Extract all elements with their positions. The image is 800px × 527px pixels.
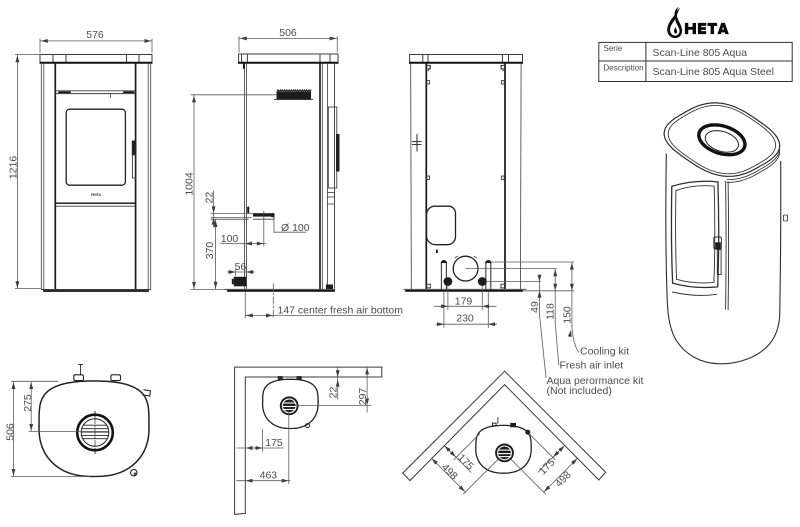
svg-text:175: 175	[265, 437, 283, 449]
svg-text:118: 118	[545, 303, 557, 320]
svg-text:Scan-Line 805 Aqua: Scan-Line 805 Aqua	[653, 47, 748, 59]
svg-text:147 center fresh air bottom: 147 center fresh air bottom	[278, 304, 404, 316]
svg-text:Scan-Line 805 Aqua Steel: Scan-Line 805 Aqua Steel	[653, 66, 774, 78]
svg-text:1216: 1216	[8, 156, 20, 180]
svg-text:498: 498	[439, 462, 460, 483]
svg-text:Fresh air inlet: Fresh air inlet	[560, 360, 624, 372]
svg-text:179: 179	[455, 295, 473, 307]
svg-text:Heta: Heta	[91, 192, 101, 197]
svg-text:506: 506	[4, 423, 16, 441]
svg-text:56: 56	[235, 261, 247, 273]
svg-text:Description: Description	[604, 64, 644, 73]
svg-text:297: 297	[357, 388, 369, 406]
svg-text:275: 275	[22, 394, 34, 412]
svg-text:22: 22	[203, 192, 215, 204]
svg-text:506: 506	[279, 27, 297, 39]
svg-text:1004: 1004	[184, 172, 196, 196]
svg-text:Cooling kit: Cooling kit	[580, 346, 629, 358]
svg-text:576: 576	[86, 29, 104, 41]
svg-text:(Not included): (Not included)	[547, 385, 612, 397]
svg-text:Ø 100: Ø 100	[281, 222, 310, 234]
svg-text:22: 22	[328, 387, 340, 399]
svg-text:463: 463	[260, 470, 278, 482]
svg-text:100: 100	[221, 233, 239, 245]
svg-text:498: 498	[553, 469, 574, 490]
svg-text:370: 370	[204, 242, 216, 260]
svg-text:Serie: Serie	[604, 44, 623, 53]
svg-text:49: 49	[529, 301, 541, 313]
svg-text:230: 230	[456, 312, 474, 324]
svg-text:150: 150	[562, 306, 574, 324]
